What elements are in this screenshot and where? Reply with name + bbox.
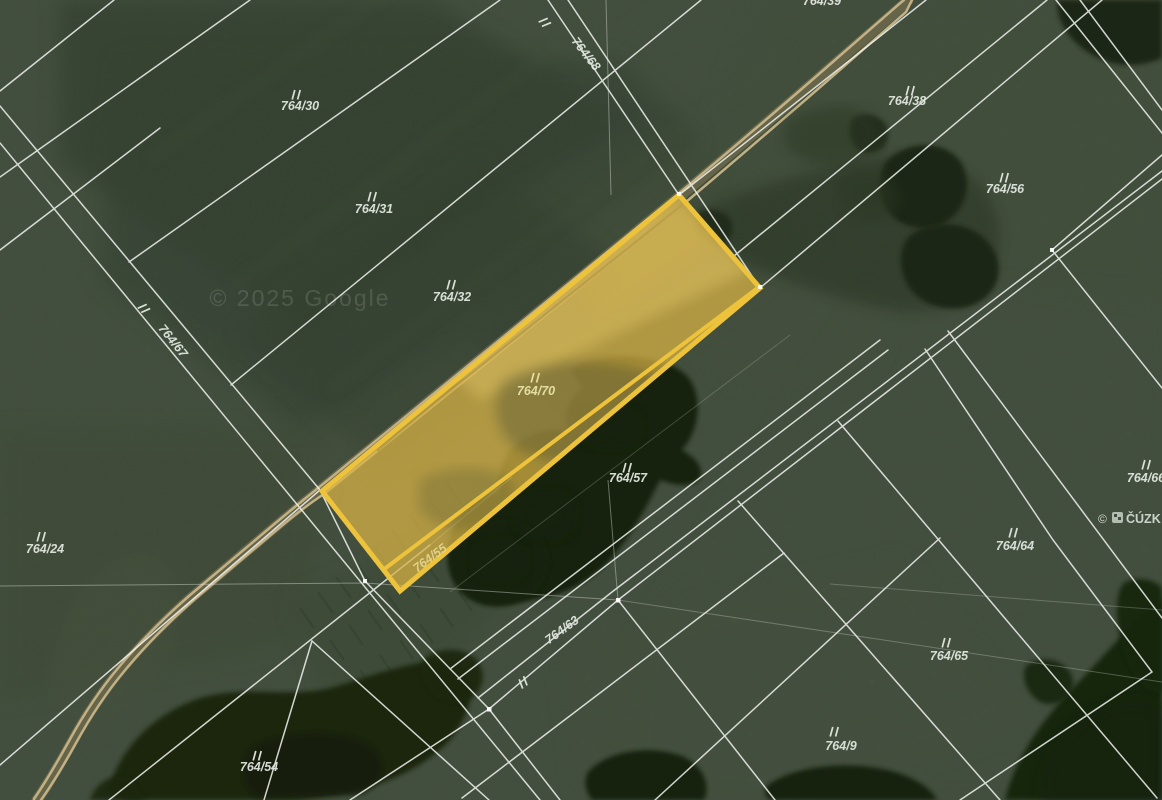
svg-text:764/66: 764/66	[1127, 471, 1162, 485]
svg-text:764/39: 764/39	[803, 0, 841, 8]
svg-text:764/54: 764/54	[240, 760, 278, 774]
svg-text:ČÚZK: ČÚZK	[1126, 511, 1161, 526]
svg-text:764/31: 764/31	[355, 202, 393, 216]
svg-text:764/70: 764/70	[517, 384, 555, 398]
svg-text:764/9: 764/9	[825, 739, 856, 753]
svg-text:© 2025 Google: © 2025 Google	[209, 285, 390, 311]
svg-text:764/56: 764/56	[986, 182, 1025, 196]
svg-text:764/38: 764/38	[888, 94, 926, 108]
svg-text:764/57: 764/57	[609, 471, 648, 485]
svg-text:764/30: 764/30	[281, 99, 319, 113]
svg-text:764/32: 764/32	[433, 290, 471, 304]
svg-text:764/64: 764/64	[996, 539, 1034, 553]
svg-text:764/65: 764/65	[930, 649, 969, 663]
svg-text:©: ©	[1098, 512, 1107, 526]
svg-text:764/24: 764/24	[26, 542, 64, 556]
